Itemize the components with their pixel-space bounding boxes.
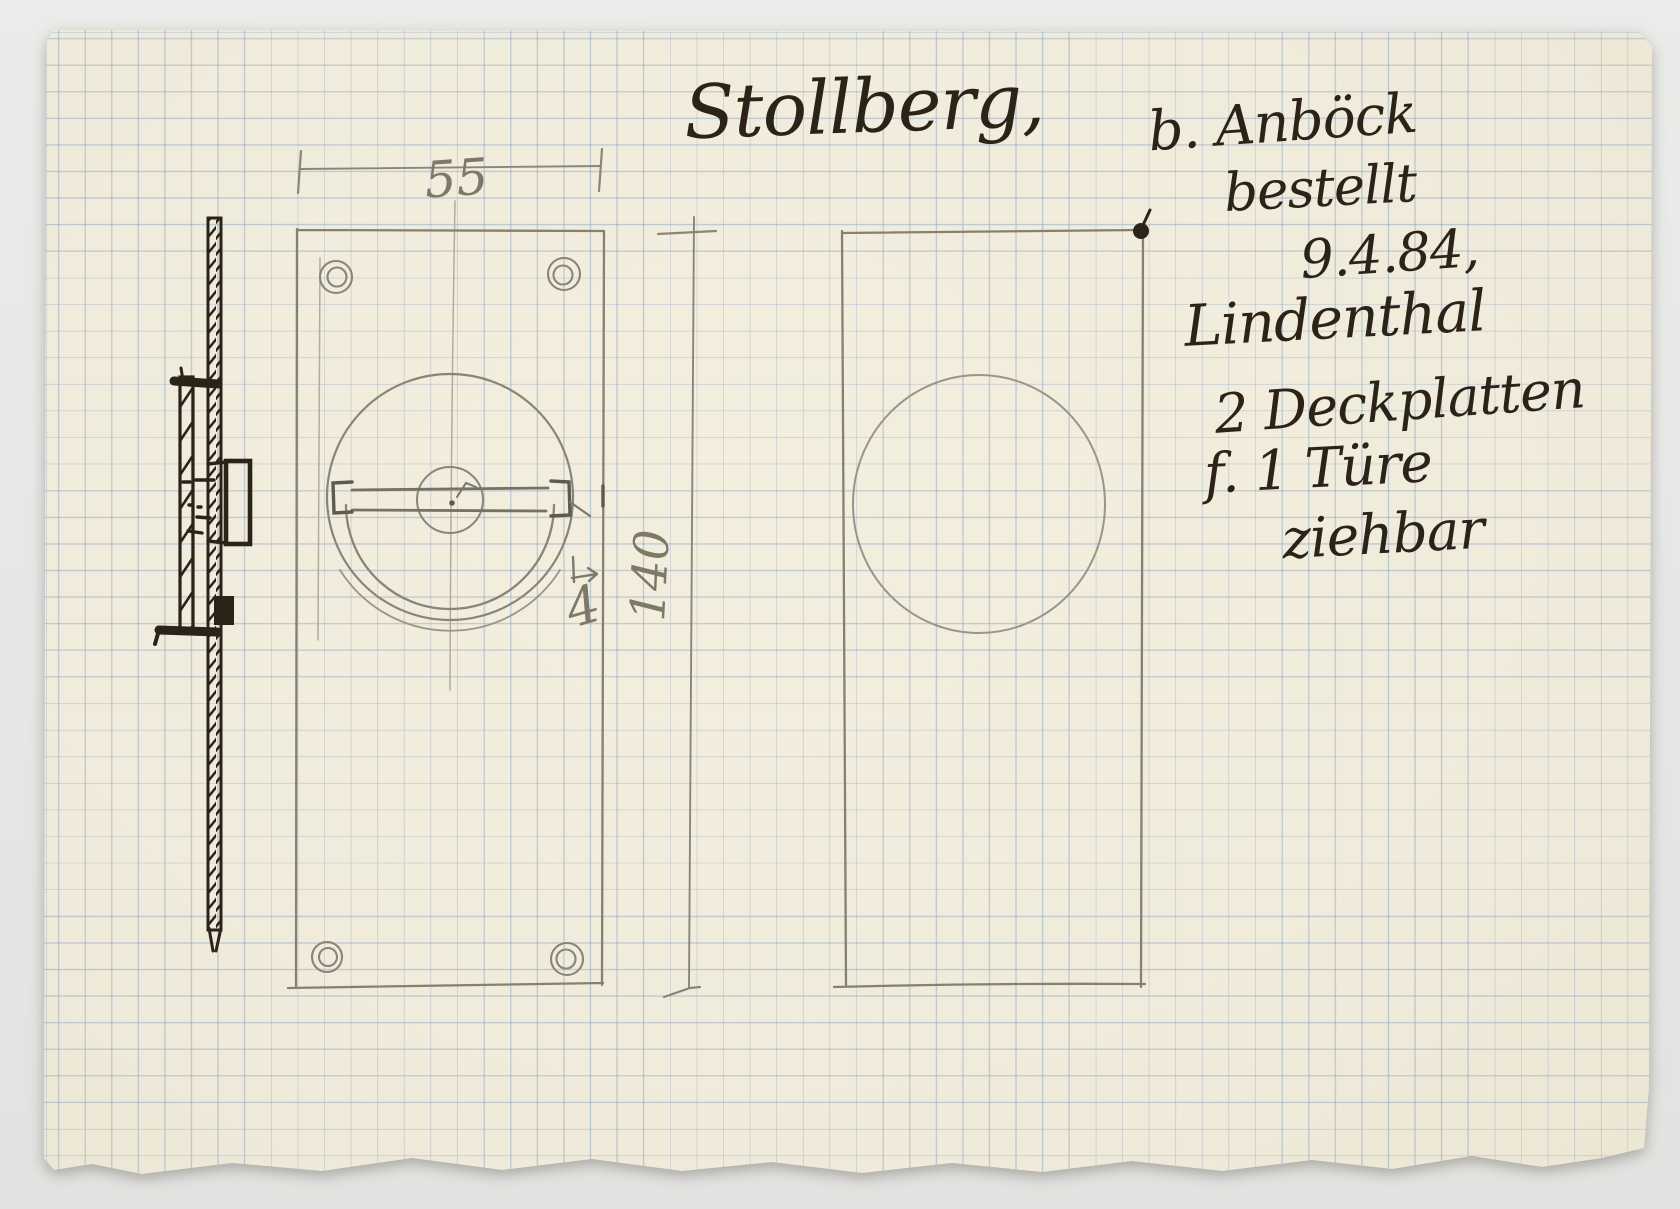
- construction-line-center: [450, 201, 455, 690]
- cup-profile: [226, 461, 250, 544]
- backplate-outline: [834, 230, 1145, 987]
- height-dim-top-tick: [658, 231, 716, 234]
- grip-bar-left-bracket: [333, 482, 352, 513]
- height-dim-bottom-tick: [664, 987, 700, 997]
- construction-line-left: [318, 258, 320, 640]
- backplate-front-view: [834, 210, 1150, 987]
- depth-dimension: 4: [558, 502, 607, 641]
- sketch-drawing: 55 140 4: [0, 0, 1680, 1209]
- note-ordered: bestellt: [1223, 153, 1418, 224]
- width-dim-label: 55: [423, 147, 491, 209]
- plate-profile: [180, 377, 193, 629]
- width-dimension: 55: [298, 147, 602, 209]
- plate-bottom-cap: [159, 630, 217, 632]
- profile-section-view: [155, 218, 250, 951]
- note-client: Stollberg,: [683, 58, 1046, 157]
- bottom-block: [215, 597, 233, 624]
- height-dim-line: [689, 217, 694, 987]
- scanned-sketch-sheet: 55 140 4 Stollberg, b. Anböck bestellt 9…: [0, 0, 1680, 1209]
- pull-hub-circle: [417, 467, 483, 533]
- depth-dim-label: 4: [558, 574, 607, 641]
- pivot-dot: [449, 500, 455, 506]
- grip-bar: [352, 488, 548, 511]
- height-dimension: 140: [620, 217, 716, 997]
- backplate-circle: [853, 375, 1105, 633]
- door-edge-bar: [208, 218, 221, 930]
- note-item-type: ziehbar: [1280, 497, 1485, 571]
- height-dim-label: 140: [620, 528, 681, 622]
- screw-holes: [312, 258, 583, 975]
- ink-corner-dot: [1133, 223, 1149, 239]
- note-item-for: f. 1 Türe: [1202, 430, 1433, 506]
- ink-corner-dot-tail: [1144, 210, 1150, 223]
- faceplate-front-view: [288, 201, 604, 988]
